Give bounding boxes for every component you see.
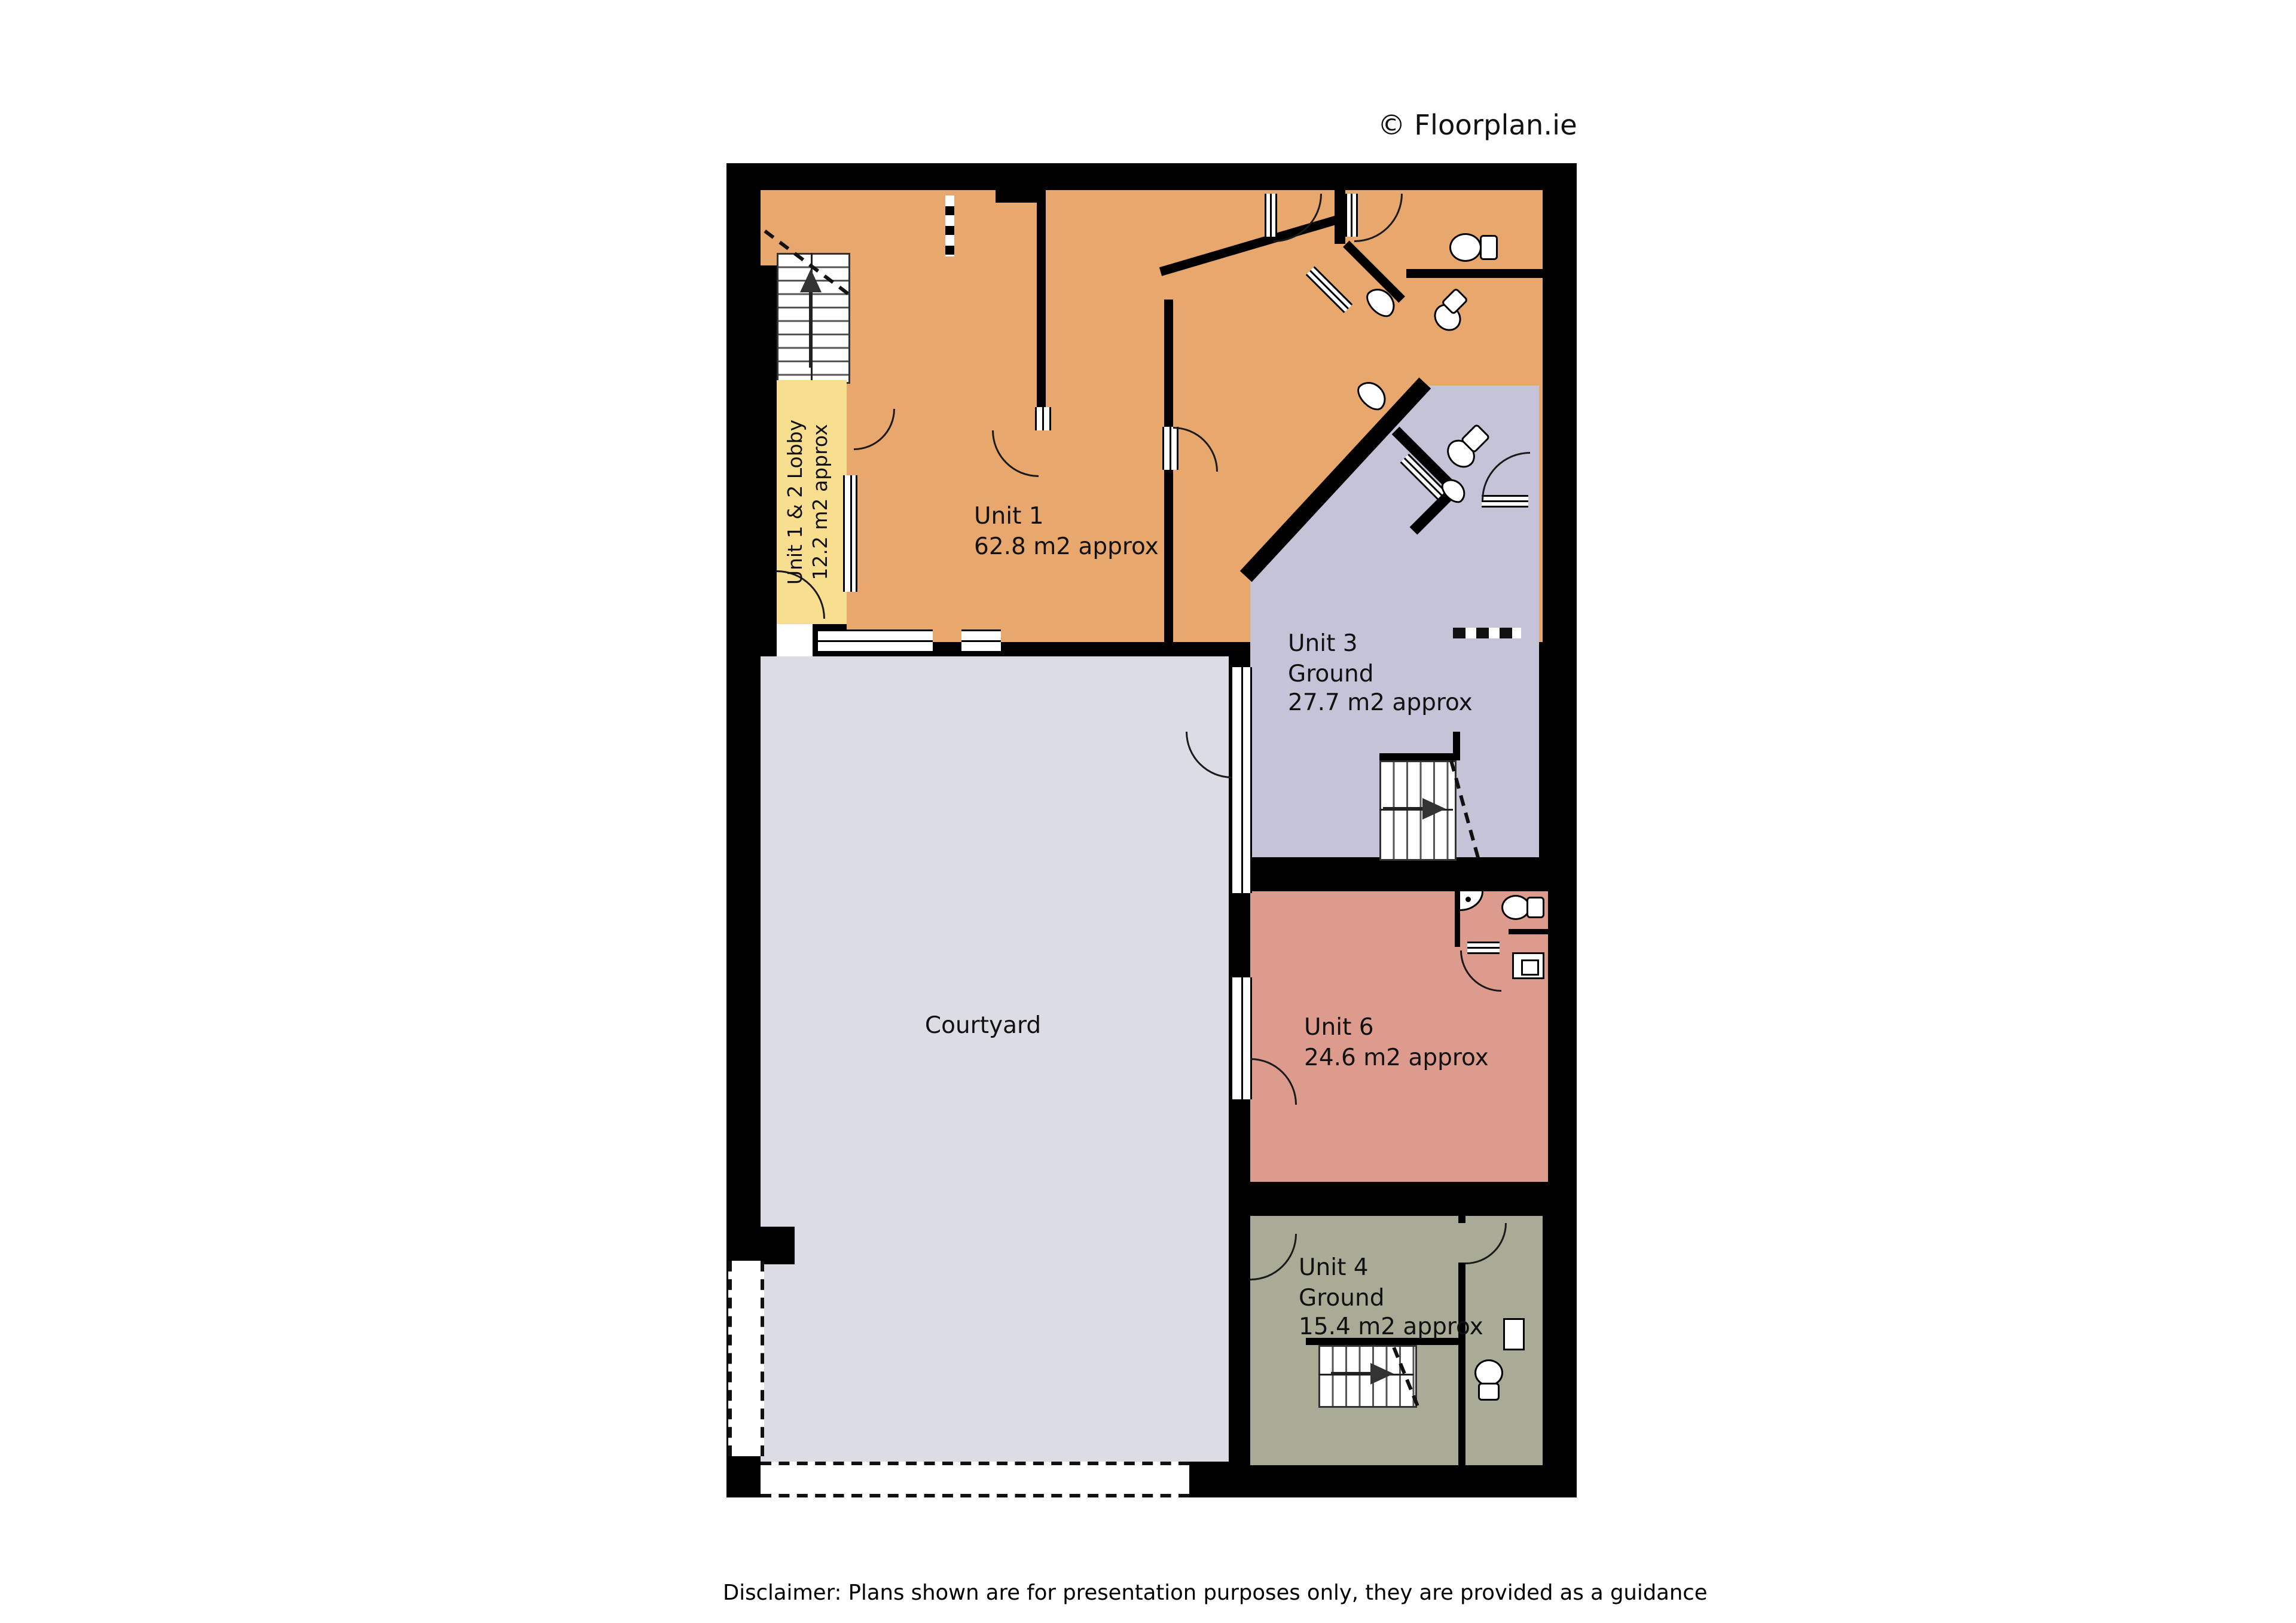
unit3-label-name: Unit 3 bbox=[1288, 631, 1473, 661]
room-courtyard bbox=[761, 656, 1229, 1462]
unit1-wall-b-upper bbox=[1164, 299, 1173, 427]
toilet-tank-unit6 bbox=[1526, 897, 1544, 918]
shower-tray bbox=[1521, 959, 1540, 976]
disclaimer-line-1: Disclaimer: Plans shown are for presenta… bbox=[723, 1579, 1729, 1607]
lobby-label-name: Unit 1 & 2 Lobby bbox=[784, 377, 809, 628]
floorplan-stage: © Floorplan.ie bbox=[0, 0, 2296, 1623]
lobby-label: Unit 1 & 2 Lobby 12.2 m2 approx bbox=[784, 377, 838, 628]
unit6-label-area: 24.6 m2 approx bbox=[1304, 1045, 1489, 1075]
unit4-label: Unit 4 Ground 15.4 m2 approx bbox=[1299, 1255, 1483, 1345]
unit6-label-name: Unit 6 bbox=[1304, 1015, 1489, 1045]
stairs-unit3-arrow bbox=[1422, 798, 1446, 820]
unit1-label-area: 62.8 m2 approx bbox=[974, 534, 1159, 564]
unit1-dashed-opening bbox=[945, 195, 954, 256]
unit6-bath-wall-v bbox=[1455, 891, 1460, 947]
unit3-label: Unit 3 Ground 27.7 m2 approx bbox=[1288, 631, 1473, 721]
unit3-stair-wall-h bbox=[1379, 753, 1460, 760]
unit1-label-name: Unit 1 bbox=[974, 504, 1159, 534]
stairs-unit4 bbox=[1318, 1345, 1417, 1408]
unit6-label: Unit 6 24.6 m2 approx bbox=[1304, 1015, 1489, 1075]
courtyard-window-2 bbox=[961, 629, 1001, 653]
bathroom-door-stub bbox=[1335, 190, 1345, 244]
unit4-label-floor: Ground bbox=[1299, 1285, 1483, 1315]
unit1-label: Unit 1 62.8 m2 approx bbox=[974, 504, 1159, 564]
dashed-strip-bottom bbox=[761, 1462, 1189, 1497]
disclaimer-text: Disclaimer: Plans shown are for presenta… bbox=[723, 1523, 1729, 1623]
stairs-unit4-arrow bbox=[1370, 1363, 1394, 1384]
toilet-tank-1 bbox=[1480, 235, 1498, 260]
toilet-icon-1 bbox=[1449, 233, 1482, 262]
courtyard-window-right-1 bbox=[1231, 667, 1252, 893]
lobby-unit1-window bbox=[843, 475, 857, 592]
floorplan-page: © Floorplan.ie bbox=[0, 0, 2296, 1623]
unit3-label-floor: Ground bbox=[1288, 661, 1473, 691]
dashed-strip-left bbox=[728, 1261, 764, 1456]
lobby-label-area: 12.2 m2 approx bbox=[809, 377, 834, 628]
top-wall-step bbox=[996, 163, 1037, 203]
courtyard-label: Courtyard bbox=[893, 1013, 1073, 1043]
stairs-lobby-arrow-shaft bbox=[809, 292, 813, 368]
bathroom-wall-h bbox=[1406, 269, 1543, 278]
toilet-icon-unit6 bbox=[1501, 895, 1530, 920]
stairs-unit4-arrow-shaft bbox=[1331, 1372, 1374, 1376]
copyright-text: © Floorplan.ie bbox=[1378, 109, 1577, 142]
courtyard-window-right-2 bbox=[1231, 977, 1252, 1099]
unit4-label-area: 15.4 m2 approx bbox=[1299, 1315, 1483, 1345]
toilet-tank-unit4 bbox=[1478, 1383, 1500, 1401]
unit6-bath-wall-h bbox=[1509, 929, 1548, 934]
sink-unit6-faucet-dot bbox=[1465, 897, 1471, 902]
unit1-wall-a-window bbox=[1035, 407, 1051, 430]
courtyard-label-name: Courtyard bbox=[893, 1013, 1073, 1043]
courtyard-window-1 bbox=[818, 629, 933, 653]
courtyard-lobby-gap bbox=[777, 626, 813, 655]
unit4-wc-door-panel bbox=[1503, 1318, 1525, 1350]
stairs-unit3-arrow-shaft bbox=[1383, 807, 1426, 811]
unit4-label-name: Unit 4 bbox=[1299, 1255, 1483, 1285]
unit3-label-area: 27.7 m2 approx bbox=[1288, 691, 1473, 721]
shower-icon-unit6 bbox=[1512, 952, 1544, 979]
unit1-wall-a bbox=[1037, 190, 1046, 407]
unit1-wall-b-lower bbox=[1164, 470, 1173, 642]
courtyard-notch bbox=[761, 1227, 795, 1264]
